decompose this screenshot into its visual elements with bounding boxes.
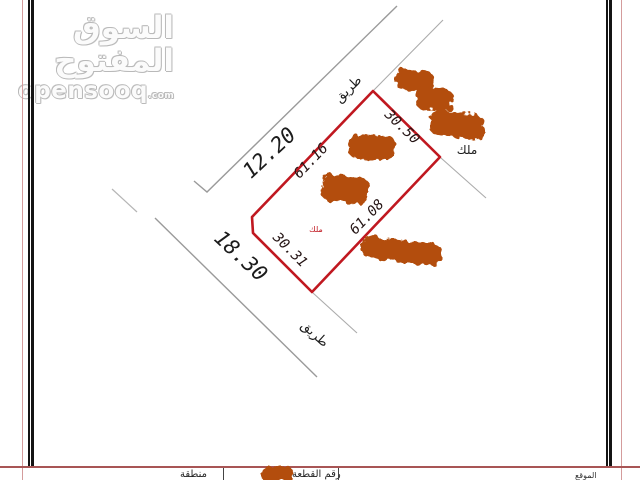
survey-document-photo: السوق المفتوح opensooq.com 4773 H 12.20 … — [0, 0, 640, 480]
footer-region-label: منطقة — [180, 469, 207, 480]
footer-divider-2 — [338, 468, 339, 480]
neighbor-right-label: ملك — [457, 143, 478, 157]
redaction-blob-footer — [261, 467, 293, 480]
footer-divider-1 — [223, 468, 224, 480]
redaction-blob-plot-upper — [348, 133, 397, 160]
footer-plot-no-label: رقم القطعة — [292, 469, 341, 480]
road-line-top-stub — [112, 189, 137, 212]
redaction-blob-plot-lower — [320, 174, 369, 205]
redaction-blob-top-2 — [415, 86, 453, 112]
redaction-blob-bottom — [361, 235, 443, 267]
neighbor-line-right — [441, 158, 486, 198]
plot-owner-mark: ملك — [309, 225, 323, 234]
plot-edge-nw-dimension: 61.16 — [291, 141, 332, 182]
road-bottom-label: طريق — [297, 318, 331, 351]
redaction-blob-top-3 — [429, 109, 486, 141]
footer-right-label: الموقع — [575, 471, 597, 480]
road-top-label: طريق — [332, 73, 365, 106]
road-bottom-dimension: 18.30 — [209, 226, 272, 287]
neighbor-line-lower — [313, 293, 357, 333]
survey-drawing: 4773 H 12.20 18.30 طريق طريق 61.16 30.50… — [0, 0, 640, 480]
plot-edge-sw-dimension: 30.31 — [269, 229, 311, 271]
